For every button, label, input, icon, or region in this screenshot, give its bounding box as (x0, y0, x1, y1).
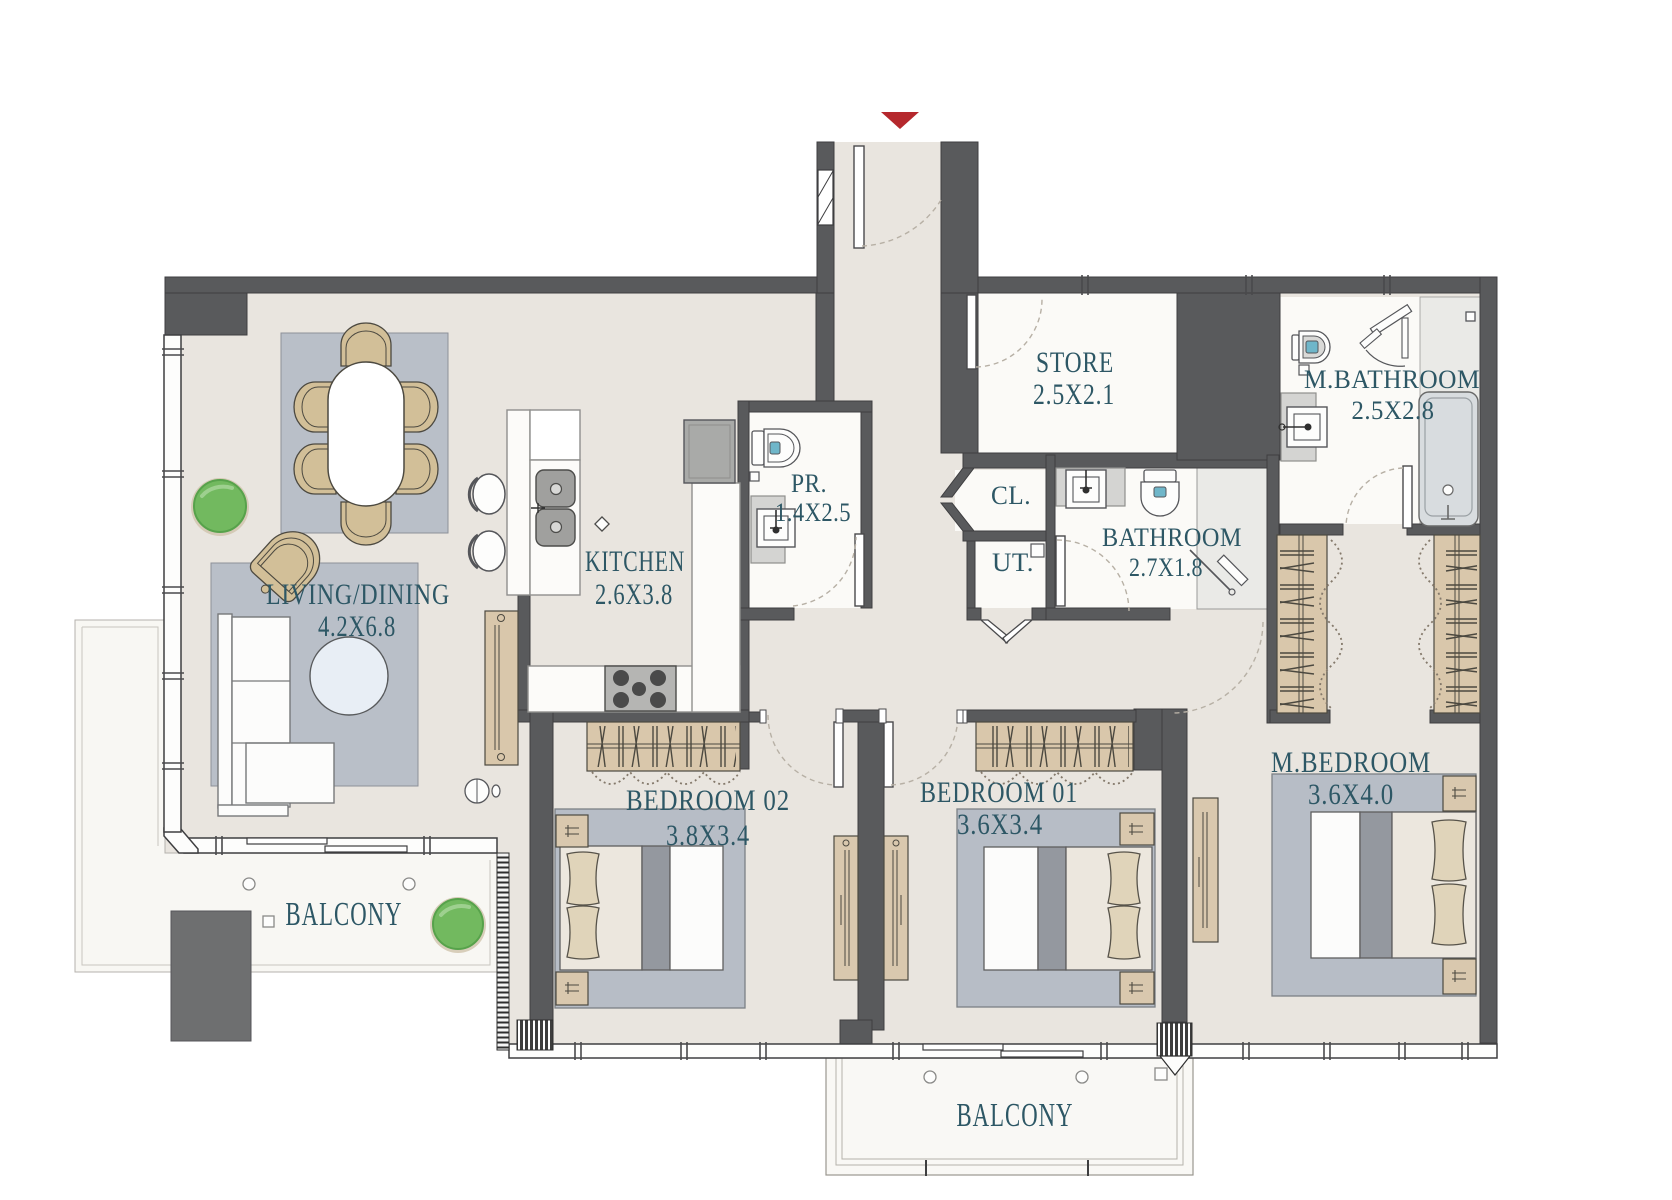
svg-text:2.7X1.8: 2.7X1.8 (1129, 553, 1203, 582)
svg-text:BEDROOM 02: BEDROOM 02 (626, 784, 790, 817)
svg-text:BALCONY: BALCONY (957, 1097, 1074, 1134)
svg-text:LIVING/DINING: LIVING/DINING (266, 578, 450, 611)
svg-text:2.5X2.1: 2.5X2.1 (1033, 378, 1115, 411)
svg-text:STORE: STORE (1036, 346, 1114, 379)
svg-text:BEDROOM 01: BEDROOM 01 (920, 776, 1078, 809)
svg-text:BALCONY: BALCONY (286, 896, 403, 933)
svg-text:CL.: CL. (991, 481, 1031, 510)
svg-text:UT.: UT. (992, 548, 1034, 577)
svg-text:PR.: PR. (791, 469, 827, 498)
svg-text:4.2X6.8: 4.2X6.8 (318, 610, 396, 643)
svg-text:M.BEDROOM: M.BEDROOM (1271, 746, 1431, 779)
svg-text:3.6X4.0: 3.6X4.0 (1308, 778, 1394, 811)
svg-text:2.6X3.8: 2.6X3.8 (595, 578, 673, 611)
svg-text:3.8X3.4: 3.8X3.4 (666, 819, 750, 852)
svg-text:3.6X3.4: 3.6X3.4 (957, 808, 1043, 841)
svg-text:BATHROOM: BATHROOM (1102, 523, 1242, 552)
svg-text:KITCHEN: KITCHEN (585, 545, 685, 578)
svg-text:1.4X2.5: 1.4X2.5 (775, 498, 851, 527)
svg-text:2.5X2.8: 2.5X2.8 (1352, 396, 1435, 425)
svg-text:M.BATHROOM: M.BATHROOM (1304, 365, 1480, 394)
